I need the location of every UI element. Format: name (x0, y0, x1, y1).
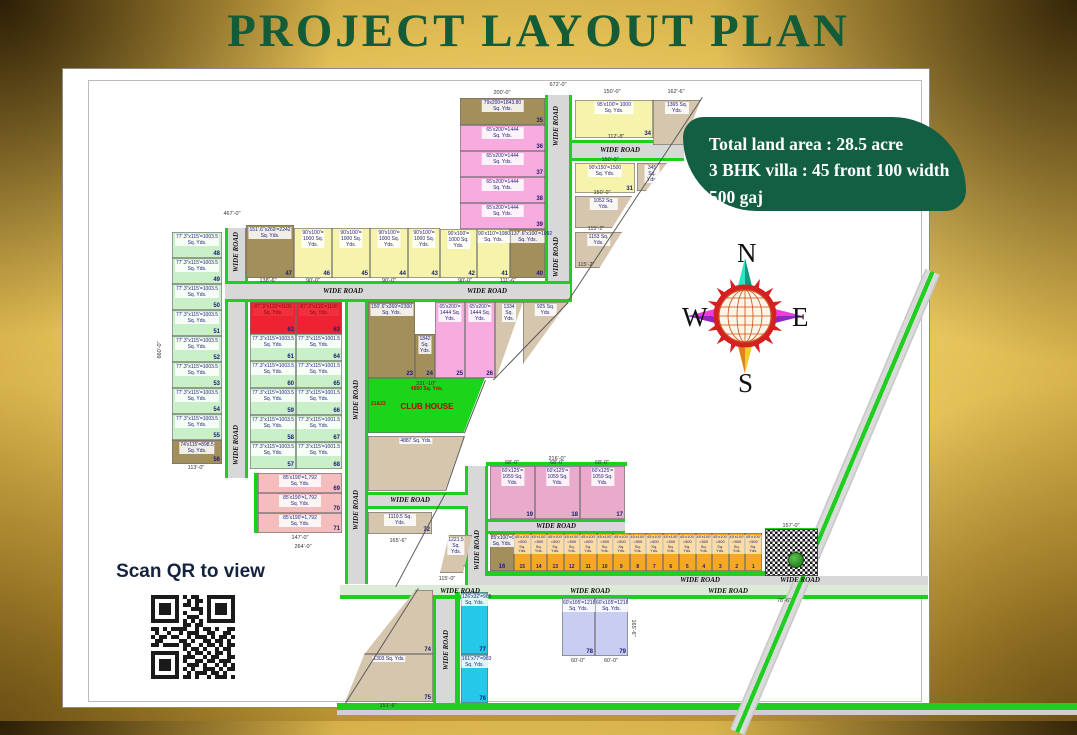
plot-number: 7 (653, 564, 656, 570)
plot-number: 65 (333, 381, 340, 387)
plot-number: 34 (644, 131, 651, 137)
road (345, 281, 368, 584)
plot-size-label: 1119.5 Sq. Yds. (384, 514, 416, 526)
plot-number: 29 (613, 261, 620, 267)
plot-number: 54 (213, 407, 220, 413)
plot-size-label: 77'.3"x115'=1001.5 Sq. Yds. (297, 417, 341, 429)
plot-size-label: 77'.3"x115'=1003.5 Sq. Yds. (175, 312, 219, 324)
plot-72: 1119.5 Sq. Yds.72 (368, 512, 432, 534)
dimension-label: 90'-0" (458, 278, 472, 284)
plot-size-label: 65'x200'=1444 Sq. Yds. (481, 179, 524, 191)
plot-11: 45'x100' =500 Sq. Yds.11 (580, 533, 597, 571)
plot-number: 52 (213, 355, 220, 361)
dimension-label: 467'-0" (223, 211, 240, 217)
road-label: WIDE ROAD (323, 287, 363, 295)
plot-number: 39 (536, 222, 543, 228)
road-green-strip (455, 592, 460, 704)
plot-size-label: 1334 Sq. Yds. (502, 304, 516, 322)
plot-size-label: 1842 Sq. Yds. (418, 336, 431, 354)
plot-number: 62 (287, 327, 294, 333)
plot-number: 41 (501, 271, 508, 277)
plot-size-label: 90'x100'= 1000 Sq. Yds. (412, 230, 435, 248)
dimension-label: 672'-0" (549, 82, 566, 88)
plot-56: 74'x115'=898.5 Sq. Yds.56 (172, 440, 222, 464)
plot-size-label: 77'.3"x115'=1003.5 Sq. Yds. (175, 416, 219, 428)
plot-number: 11 (586, 564, 591, 570)
plot-size-label: 77'.3"x115'=1003.5 Sq. Yds. (251, 363, 295, 375)
road-label: WIDE ROAD (467, 287, 507, 295)
road (225, 281, 570, 302)
dimension-label: 138'-6" (259, 278, 276, 284)
plot-15: 45'x100' =500 Sq. Yds.15 (514, 533, 531, 571)
plot-number: 79 (619, 649, 626, 655)
plot-size-label: 90'x100'= 1000 Sq. Yds. (447, 231, 470, 249)
plot-45: 90'x100'= 1000 Sq. Yds.45 (332, 228, 370, 278)
plot-size-label: 60'x105'=1218 Sq. Yds. (595, 600, 628, 612)
plot-size-label: 60'x105'=1218 Sq. Yds. (562, 600, 595, 612)
plot-number: 51 (213, 329, 220, 335)
plot-19: 60'x125'= 1059 Sq. Yds.19 (490, 466, 535, 519)
plot-2: 45'x100' =500 Sq. Yds.2 (729, 533, 746, 571)
plot-size-label: 45'x100' =500 Sq. Yds. (662, 535, 679, 554)
plot-number: 17 (616, 512, 623, 518)
plot-75: 1303 Sq. Yds.75 (345, 654, 433, 702)
plot-12: 45'x100' =500 Sq. Yds.12 (564, 533, 581, 571)
plot-size-label: 85'x100'=944 Sq. Yds. (490, 535, 515, 547)
plot-number: 9 (620, 564, 623, 570)
plot-53: 77'.3"x115'=1003.5 Sq. Yds.53 (172, 362, 222, 388)
plot-size-label: 77'.3"x115'=1003.5 Sq. Yds. (251, 444, 295, 456)
road-label: WIDE ROAD (552, 237, 560, 277)
dimension-label: 151'-6" (379, 703, 396, 709)
plot-5: 45'x100' =500 Sq. Yds.5 (679, 533, 696, 571)
plot-27: 1334 Sq. Yds.27 (495, 302, 523, 378)
plot-number: 20 (455, 484, 462, 490)
plot-49: 77'.3"x115'=1003.5 Sq. Yds.49 (172, 258, 222, 284)
road-label: WIDE ROAD (352, 380, 360, 420)
plot-6: 45'x100' =500 Sq. Yds.6 (663, 533, 680, 571)
road-label: WIDE ROAD (552, 106, 560, 146)
dimension-label: 264'-0" (294, 544, 311, 550)
plot-14: 45'x100' =500 Sq. Yds.14 (531, 533, 548, 571)
plot-size-label: 161'x77'=983 Sq. Yds. (461, 656, 488, 668)
plot-1: 45'x100' =500 Sq. Yds.1 (745, 533, 762, 571)
road-label: WIDE ROAD (232, 425, 240, 465)
plot-36: 65'x200'=1444 Sq. Yds.36 (460, 125, 545, 151)
plot-number: 12 (569, 564, 575, 570)
dimension-label: 113'-0" (188, 465, 205, 471)
plot-43: 90'x100'= 1000 Sq. Yds.43 (408, 228, 440, 278)
plot-47: 151'.6"x269'=2242 Sq. Yds.47 (246, 225, 294, 278)
dimension-label: 78'-6" (777, 598, 791, 604)
compass-south-label: S (738, 368, 753, 399)
plot-size-label: 77'.3"x115'=1003.5 Sq. Yds. (175, 338, 219, 350)
plot-size-label: 65'x200'=1444 Sq. Yds. (481, 153, 524, 165)
plot-number: 42 (468, 271, 475, 277)
plot-8: 45'x100' =500 Sq. Yds.8 (630, 533, 647, 571)
plot-62: 87'.3"x115'=1100 Sq. Yds.62 (250, 302, 296, 334)
dimension-label: 150'-0" (601, 157, 618, 163)
plot-size-label: 925 Sq. Yds. (534, 304, 557, 316)
dimension-label: 111'-6" (500, 278, 516, 284)
plot-51: 77'.3"x115'=1003.5 Sq. Yds.51 (172, 310, 222, 336)
plot-17: 60'x125'= 1059 Sq. Yds.17 (580, 466, 625, 519)
dimension-label: 90'-0" (382, 278, 396, 284)
plot-number: 31 (626, 186, 633, 192)
plot-size-label: 65'x200'=1444 Sq. Yds. (481, 205, 524, 217)
plot-number: 69 (333, 486, 340, 492)
plot-64: 77'.3"x115'=1001.5 Sq. Yds.64 (296, 334, 342, 361)
plot-number: 23 (406, 371, 413, 377)
plot-35: 79x200=1843.80 Sq. Yds.35 (460, 98, 545, 125)
plot-size-label: 77'.3"x115'=1003.5 Sq. Yds. (175, 390, 219, 402)
compass-east-label: E (792, 302, 809, 333)
plot-number: 57 (287, 462, 294, 468)
dimension-label: 60'-0" (571, 658, 585, 664)
plot-48: 77'.3"x115'=1003.5 Sq. Yds.48 (172, 232, 222, 258)
info-line-1: Total land area : 28.5 acre (709, 131, 966, 157)
plot-4: 45'x100' =500 Sq. Yds.4 (696, 533, 713, 571)
plot-28: 925 Sq. Yds.28 (523, 302, 568, 364)
plot-63: 87'.3"x115'=1100 Sq. Yds.63 (296, 302, 342, 334)
plot-size-label: 60'x125'= 1059 Sq. Yds. (591, 468, 614, 486)
plot-number: 18 (571, 512, 578, 518)
plot-size-label: 1365 Sq. Yds. (665, 102, 689, 114)
plot-size-label: 77'.3"x115'=1003.5 Sq. Yds. (251, 390, 295, 402)
plot-38: 65'x200'=1444 Sq. Yds.38 (460, 177, 545, 203)
info-line-2: 3 BHK villa : 45 front 100 width (709, 157, 966, 183)
plot-size-label: 151'.6"x269'=2242 Sq. Yds. (248, 227, 291, 239)
plot-size-label: 65'x200'=1444 Sq. Yds. (481, 127, 524, 139)
plot-number: 74 (424, 647, 431, 653)
plot-size-label: 90'x100'= 1000 Sq. Yds. (301, 230, 324, 248)
plot-number: 67 (333, 435, 340, 441)
plot-number: 45 (361, 271, 368, 277)
plot-number: 2 (735, 564, 738, 570)
plot-size-label: 65'x200'= 1444 Sq. Yds. (468, 304, 491, 322)
plot-number: 10 (602, 564, 608, 570)
plot-52: 77'.3"x115'=1003.5 Sq. Yds.52 (172, 336, 222, 362)
plot-68: 77'.3"x115'=1001.5 Sq. Yds.68 (296, 442, 342, 469)
plot-10: 45'x100' =500 Sq. Yds.10 (597, 533, 614, 571)
plot-number: 46 (323, 271, 330, 277)
dimension-label: 331'-10" (416, 381, 436, 387)
plot-3: 45'x100' =500 Sq. Yds.3 (712, 533, 729, 571)
plot-number: 8 (636, 564, 639, 570)
plot-size-label: 77'.3"x115'=1003.5 Sq. Yds. (175, 234, 219, 246)
plot-size-label: 77'.3"x115'=1001.5 Sq. Yds. (297, 336, 341, 348)
plot-size-label: 45'x100' =500 Sq. Yds. (547, 535, 564, 554)
plot-40: 137'.6"x100'=1092 Sq. Yds.40 (510, 229, 545, 278)
plot-44: 90'x100'= 1000 Sq. Yds.44 (370, 228, 408, 278)
plot-number: 43 (431, 271, 438, 277)
plot-number: 4 (702, 564, 705, 570)
plot-70: 85'x190'=1,792 Sq. Yds.70 (258, 493, 342, 513)
plot-number: 27 (514, 371, 521, 377)
info-line-3: 500 gaj (709, 184, 966, 210)
road-label: WIDE ROAD (570, 587, 610, 595)
dimension-label: 68'-0" (505, 460, 519, 466)
plot-67: 77'.3"x115'=1001.5 Sq. Yds.67 (296, 415, 342, 442)
plot-number: 55 (213, 433, 220, 439)
plot-size-label: 87'.3"x115'=1100 Sq. Yds. (299, 304, 339, 316)
plot-number: 76 (479, 696, 486, 702)
dimension-label: 90'-0" (306, 278, 320, 284)
road-label: WIDE ROAD (473, 530, 481, 570)
plot-size-label: 90'x100'= 1000 Sq. Yds. (339, 230, 362, 248)
plot-number: 53 (213, 381, 220, 387)
dimension-label: 112'-8" (608, 134, 625, 140)
plot-24: 1842 Sq. Yds.24 (415, 334, 435, 378)
plot-size-label: 137'.6"x100'=1092 Sq. Yds. (510, 231, 545, 243)
plot-54: 77'.3"x115'=1003.5 Sq. Yds.54 (172, 388, 222, 414)
plot-16: 85'x100'=944 Sq. Yds.16 (490, 533, 514, 571)
plot-7: 45'x100' =500 Sq. Yds.7 (646, 533, 663, 571)
plot-number: 24 (426, 371, 433, 377)
compass-west-label: W (682, 302, 707, 333)
road-label: WIDE ROAD (680, 576, 720, 584)
plot-59: 77'.3"x115'=1003.5 Sq. Yds.59 (250, 388, 296, 415)
dimension-label: 162'-6" (667, 89, 684, 95)
plot-number: 56 (213, 457, 220, 463)
plot-number: 35 (536, 118, 543, 124)
plot-60: 77'.3"x115'=1003.5 Sq. Yds.60 (250, 361, 296, 388)
plot-number: 14 (536, 564, 542, 570)
plot-number: 78 (586, 649, 593, 655)
plot-46: 90'x100'= 1000 Sq. Yds.46 (294, 228, 332, 278)
plot-size-label: 45'x100' =500 Sq. Yds. (728, 535, 745, 554)
plot-size-label: 45'x100' =500 Sq. Yds. (695, 535, 712, 554)
plot-number: 50 (213, 303, 220, 309)
plot-number: 77 (479, 647, 486, 653)
plot-size-label: 65'x200'= 1444 Sq. Yds. (438, 304, 461, 322)
compass-north-label: N (737, 238, 757, 269)
road-green-strip (488, 571, 765, 576)
plot-78: 60'x105'=1218 Sq. Yds.78 (562, 598, 595, 656)
plot-18: 60'x125'= 1059 Sq. Yds.18 (535, 466, 580, 519)
plot-71: 85'x190'=1,792 Sq. Yds.71 (258, 513, 342, 533)
plot-number: 38 (536, 196, 543, 202)
plot-size-label: 45'x100' =500 Sq. Yds. (514, 535, 531, 554)
plot-9: 45'x100' =500 Sq. Yds.9 (613, 533, 630, 571)
plot-number: 16 (499, 564, 506, 570)
plot-number: 6 (669, 564, 672, 570)
plot-77: 126'x32'=985 Sq. Yds.77 (461, 592, 488, 654)
road-label: WIDE ROAD (780, 576, 820, 584)
dimension-label: 200'-0" (493, 90, 510, 96)
plot-number: 63 (333, 327, 340, 333)
plot-number: 47 (285, 271, 292, 277)
plot-size-label: 85'x190'=1,792 Sq. Yds. (279, 515, 321, 527)
plot-size-label: 45'x100' =500 Sq. Yds. (563, 535, 580, 554)
dimension-label: 115'-2" (578, 262, 595, 268)
dimension-label: 115'-2" (588, 226, 605, 232)
plot-size-label: 79x200=1843.80 Sq. Yds. (481, 100, 524, 112)
plot-size-label: 1303 Sq. Yds. (372, 656, 405, 662)
plot-number: 59 (287, 408, 294, 414)
plot-25: 65'x200'= 1444 Sq. Yds.25 (435, 302, 465, 378)
plot-number: 5 (686, 564, 689, 570)
plot-number: 37 (536, 170, 543, 176)
dimension-label: 660'-0" (157, 341, 163, 358)
plot-37: 65'x200'=1444 Sq. Yds.37 (460, 151, 545, 177)
plot-61: 77'.3"x115'=1003.5 Sq. Yds.61 (250, 334, 296, 361)
road-label: WIDE ROAD (352, 490, 360, 530)
plot-number: 48 (213, 251, 220, 257)
plot-size-label: 90'x110'=1080 Sq. Yds. (477, 231, 510, 243)
dimension-label: 60'-0" (604, 658, 618, 664)
plot-size-label: 77'.3"x115'=1003.5 Sq. Yds. (251, 417, 295, 429)
plot-74: 1493 Sq. Yds.74 (345, 590, 433, 654)
road-label: WIDE ROAD (708, 587, 748, 595)
dimension-label: 150'-0" (603, 89, 620, 95)
plot-number: 60 (287, 381, 294, 387)
plot-number: 1 (752, 564, 755, 570)
road (337, 703, 1077, 715)
plot-number: 15 (519, 564, 525, 570)
plot-58: 77'.3"x115'=1003.5 Sq. Yds.58 (250, 415, 296, 442)
plot-size-label: 45'x100' =500 Sq. Yds. (712, 535, 729, 554)
plot-size-label: 45'x100' =500 Sq. Yds. (580, 535, 597, 554)
plot-number: 66 (333, 408, 340, 414)
road-label: WIDE ROAD (390, 496, 430, 504)
plot-number: 58 (287, 435, 294, 441)
road-label: WIDE ROAD (440, 587, 480, 595)
plot-number: 64 (333, 354, 340, 360)
plot-size-label: 95'x100'= 1000 Sq. Yds. (595, 102, 634, 114)
dimension-label: 165'-6" (389, 538, 406, 544)
plot-69: 85'x190'=1,792 Sq. Yds.69 (258, 473, 342, 493)
plot-number: 49 (213, 277, 220, 283)
road-label: WIDE ROAD (600, 146, 640, 154)
plot-20: 4887 Sq. Yds.20 (368, 436, 464, 491)
plot-number: 68 (333, 462, 340, 468)
road-label: WIDE ROAD (536, 522, 576, 530)
plot-size-label: 126'x32'=985 Sq. Yds. (461, 594, 488, 606)
plot-size-label: 60'x125'= 1059 Sq. Yds. (501, 468, 524, 486)
plot-number: 28 (559, 357, 566, 363)
plot-size-label: 45'x100' =500 Sq. Yds. (745, 535, 762, 554)
plot-size-label: 1052 Sq. Yds. (589, 198, 618, 210)
plot-34: 95'x100'= 1000 Sq. Yds.34 (575, 100, 653, 138)
plot-size-label: 77'.3"x115'=1001.5 Sq. Yds. (297, 363, 341, 375)
plot-number: 13 (552, 564, 558, 570)
plot-size-label: 45'x100' =500 Sq. Yds. (596, 535, 613, 554)
plot-76: 161'x77'=983 Sq. Yds.76 (461, 654, 488, 703)
plot-size-label: 45'x100' =500 Sq. Yds. (679, 535, 696, 554)
plot-number: 40 (536, 271, 543, 277)
plot-30: 1052 Sq. Yds.30 (575, 196, 632, 228)
plot-size-label: 87'.3"x115'=1100 Sq. Yds. (253, 304, 293, 316)
dimension-label: 68'-0" (550, 460, 564, 466)
qr-code-icon (149, 593, 237, 681)
plot-13: 45'x100' =500 Sq. Yds.13 (547, 533, 564, 571)
plot-number: 61 (287, 354, 294, 360)
plot-size-label: 45'x100' =500 Sq. Yds. (613, 535, 630, 554)
road-label: WIDE ROAD (232, 232, 240, 272)
plot-number: 36 (536, 144, 543, 150)
dimension-label: 147'-0" (291, 535, 308, 541)
plot-size-label: 45'x100' =500 Sq. Yds. (646, 535, 663, 554)
road-label: WIDE ROAD (442, 630, 450, 670)
plot-39: 65'x200'=1444 Sq. Yds.39 (460, 203, 545, 229)
plot-number: 3 (719, 564, 722, 570)
plot-number: 19 (526, 512, 533, 518)
plot-size-label: 90'x150'=1500 Sq. Yds. (588, 165, 622, 177)
plot-size-label: 45'x100' =500 Sq. Yds. (629, 535, 646, 554)
tree-icon (788, 552, 804, 568)
plot-26: 65'x200'= 1444 Sq. Yds.26 (465, 302, 495, 378)
plot-31: 90'x150'=1500 Sq. Yds.31 (575, 163, 635, 193)
plot-79: 60'x105'=1218 Sq. Yds.79 (595, 598, 628, 656)
plot-number: 71 (333, 526, 340, 532)
plot-number: 32 (658, 184, 665, 190)
plot-66: 77'.3"x115'=1001.5 Sq. Yds.66 (296, 388, 342, 415)
plot-size-label: 77'.3"x115'=1003.5 Sq. Yds. (251, 336, 295, 348)
plot-size-label: 150'.6"x269'=2300 Sq. Yds. (370, 304, 413, 316)
plot-number: 26 (486, 371, 493, 377)
dimension-label: 115'-0" (439, 576, 456, 582)
plot-size-label: 1221.5 Sq. Yds. (447, 537, 464, 555)
plot-number: 25 (456, 371, 463, 377)
globe-grid (719, 290, 771, 342)
plot-size-label: 45'x100' =500 Sq. Yds. (530, 535, 547, 554)
dimension-label: 68'-0" (595, 460, 609, 466)
plot-41: 90'x110'=1080 Sq. Yds.41 (477, 229, 510, 278)
plot-size-label: 77'.3"x115'=1001.5 Sq. Yds. (297, 390, 341, 402)
plot-size-label: 90'x100'= 1000 Sq. Yds. (377, 230, 400, 248)
plot-57: 77'.3"x115'=1003.5 Sq. Yds.57 (250, 442, 296, 469)
plot-size-label: 4887 Sq. Yds. (399, 438, 432, 444)
plot-size-label: 74'x115'=898.5 Sq. Yds. (179, 442, 214, 454)
plot-number: 70 (333, 506, 340, 512)
plot-size-label: 85'x190'=1,792 Sq. Yds. (279, 475, 321, 487)
qr-caption: Scan QR to view (108, 561, 273, 583)
plot-65: 77'.3"x115'=1001.5 Sq. Yds.65 (296, 361, 342, 388)
plot-number: 75 (424, 695, 431, 701)
plot-50: 77'.3"x115'=1003.5 Sq. Yds.50 (172, 284, 222, 310)
plot-23: 150'.6"x269'=2300 Sq. Yds.23 (368, 302, 415, 378)
plot-number: 21&22 (371, 401, 386, 407)
plot-size-label: 77'.3"x115'=1001.5 Sq. Yds. (297, 444, 341, 456)
plot-number: 30 (623, 221, 630, 227)
info-box: Total land area : 28.5 acre 3 BHK villa … (683, 117, 966, 211)
plot-42: 90'x100'= 1000 Sq. Yds.42 (440, 229, 477, 278)
plot-size-label: 77'.3"x115'=1003.5 Sq. Yds. (175, 260, 219, 272)
club-house-label: CLUB HOUSE (397, 402, 457, 412)
plot-size-label: 77'.3"x115'=1003.5 Sq. Yds. (175, 286, 219, 298)
plot-size-label: 77'.3"x115'=1003.5 Sq. Yds. (175, 364, 219, 376)
plot-size-label: 60'x125'= 1059 Sq. Yds. (546, 468, 569, 486)
dimension-label: 165'-6" (630, 619, 636, 636)
dimension-label: 150'-0" (593, 190, 610, 196)
plot-size-label: 85'x190'=1,792 Sq. Yds. (279, 495, 321, 507)
plot-55: 77'.3"x115'=1003.5 Sq. Yds.55 (172, 414, 222, 440)
plot-number: 44 (399, 271, 406, 277)
dimension-label: 157'-0" (782, 523, 799, 529)
